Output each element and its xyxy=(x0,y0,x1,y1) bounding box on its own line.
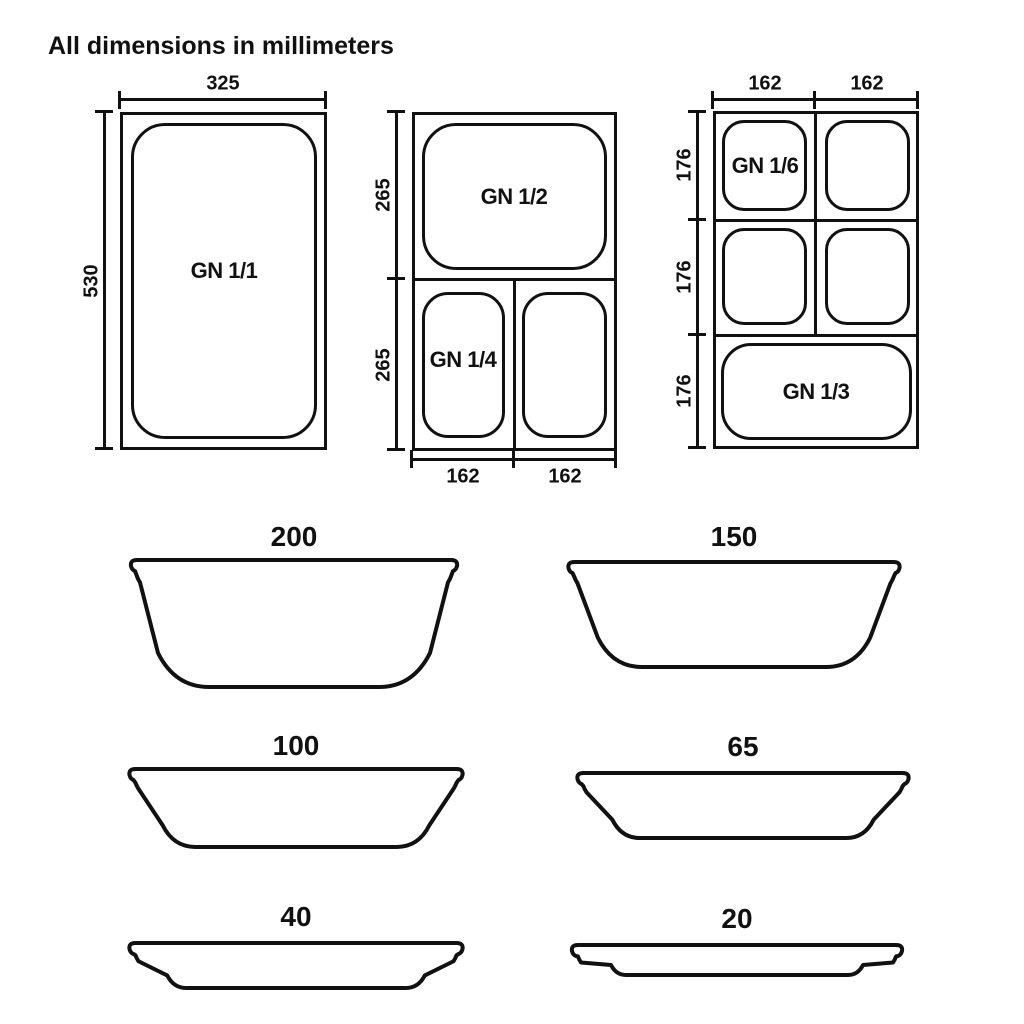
depth-label-40: 40 xyxy=(280,901,311,933)
depth-label-100: 100 xyxy=(273,730,320,762)
pan-profile-20 xyxy=(572,945,902,975)
depth-label-200: 200 xyxy=(271,521,318,553)
pan-profile-100 xyxy=(129,769,462,847)
pan-profile-150 xyxy=(568,562,899,667)
depth-label-20: 20 xyxy=(721,903,752,935)
depth-label-65: 65 xyxy=(727,731,758,763)
pan-profile-65 xyxy=(577,773,908,838)
pan-profile-40 xyxy=(129,943,462,988)
depth-label-150: 150 xyxy=(711,521,758,553)
gn-pan-dimensions-diagram: All dimensions in millimeters GN 1/1 325… xyxy=(0,0,1024,1024)
pan-depth-profiles xyxy=(0,0,1024,1024)
pan-profile-200 xyxy=(131,560,457,687)
